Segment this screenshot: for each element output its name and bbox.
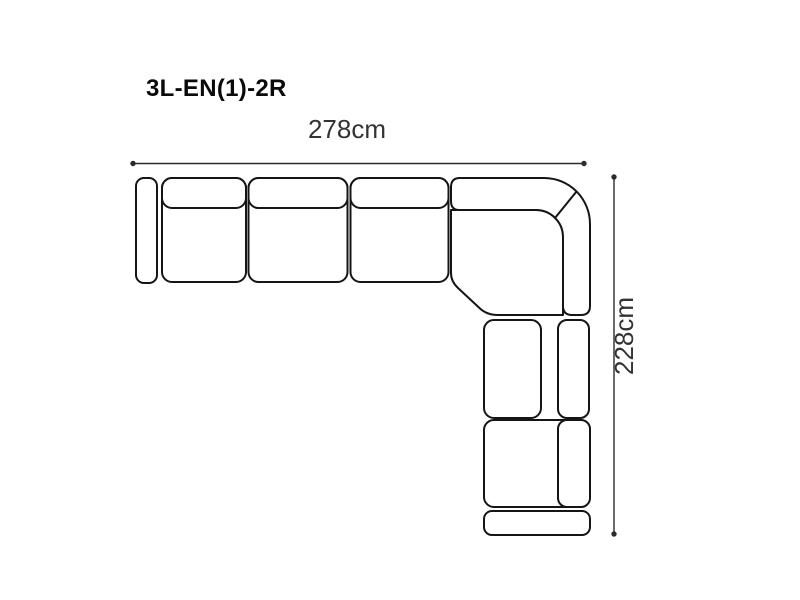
sofa-outline [136, 178, 590, 535]
back-cushion-2 [249, 178, 348, 208]
seat-module-2 [249, 178, 348, 282]
height-dimension-dot-top [611, 174, 616, 179]
back-cushion-1 [162, 178, 246, 208]
sofa-dimension-diagram: 3L-EN(1)-2R 278cm 228cm [0, 0, 800, 600]
right-back-cushion-2 [558, 420, 590, 507]
seat-module-1 [162, 178, 246, 282]
product-code-label: 3L-EN(1)-2R [146, 75, 287, 102]
width-dimension-dot-right [581, 161, 586, 166]
height-dimension-dot-bottom [611, 531, 616, 536]
width-dimension: 278cm [130, 114, 586, 166]
corner-seat [451, 210, 563, 315]
front-armrest [484, 511, 590, 535]
right-seat-module-2 [484, 420, 590, 507]
left-armrest [136, 178, 157, 283]
width-dimension-label: 278cm [308, 114, 386, 144]
right-seat-cushion-1 [484, 320, 541, 418]
corner-module [451, 178, 590, 315]
seat-module-3 [351, 178, 449, 282]
height-dimension: 228cm [609, 174, 639, 536]
right-seat-module-1 [484, 320, 589, 418]
right-back-cushion-1 [558, 320, 589, 418]
width-dimension-dot-left [130, 161, 135, 166]
back-cushion-3 [351, 178, 449, 208]
diagram-svg: 3L-EN(1)-2R 278cm 228cm [0, 0, 800, 600]
